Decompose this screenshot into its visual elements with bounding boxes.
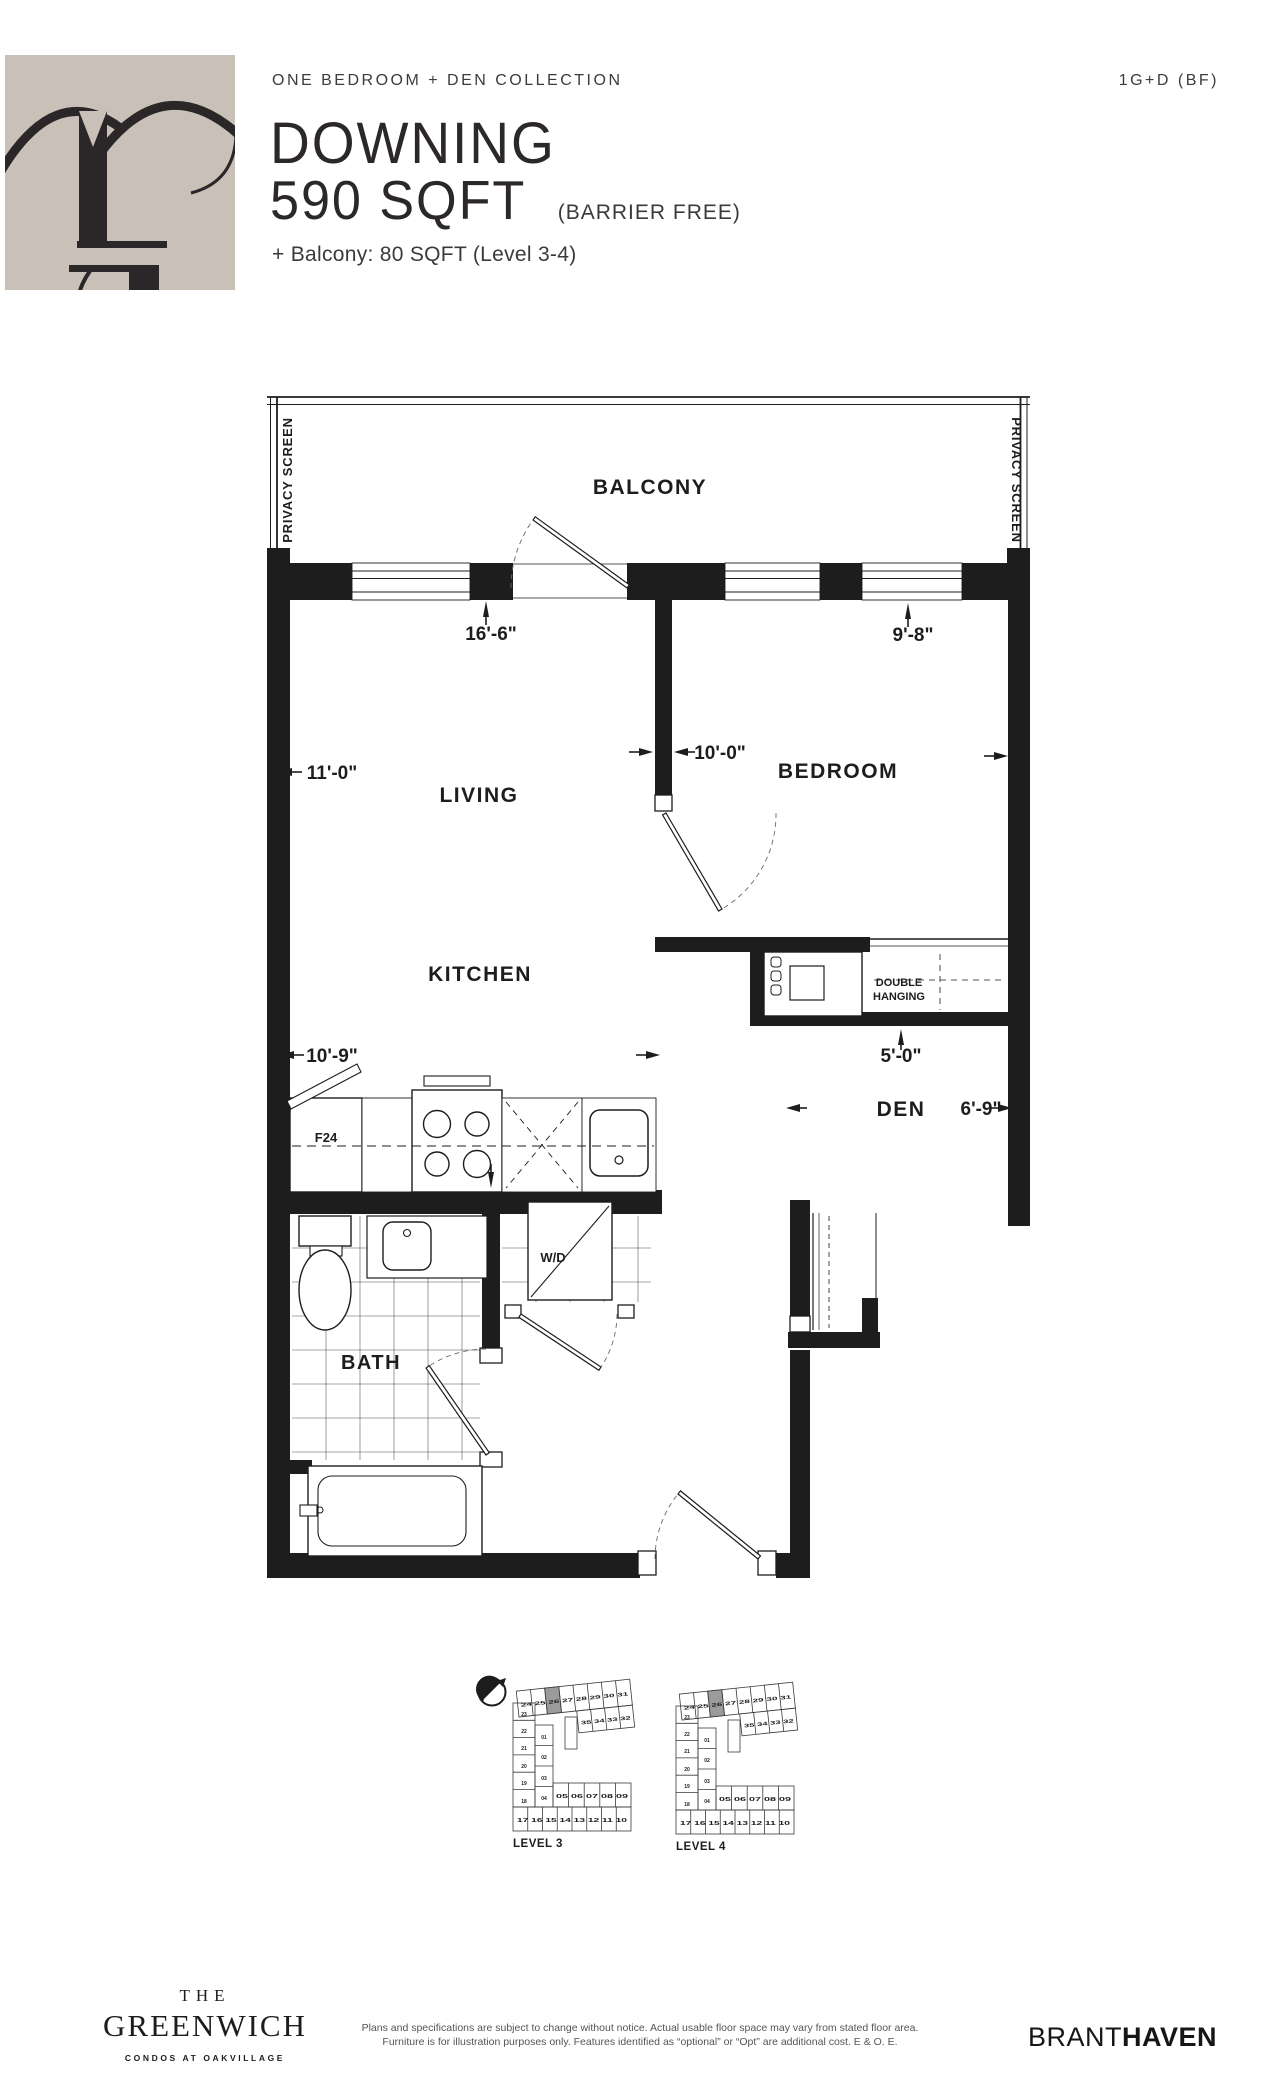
stove-handle [424,1076,490,1086]
counter [362,1098,412,1192]
key-plan-level-4: 24 25 26 27 28 29 30 31 35 34 33 32 23 2… [676,1682,798,1853]
svg-text:05 06 07 08 09: 05 06 07 08 09 [556,1794,628,1800]
bath-door [426,1366,489,1455]
svg-text:18: 18 [521,1799,527,1805]
label-closet-double: DOUBLE [876,977,922,989]
doors [426,517,776,1559]
floor-plan-drawing: PRIVACY SCREEN PRIVACY SCREEN [250,380,1050,1860]
dim-bedroom-width: 9'-8" [893,625,934,646]
svg-text:05 06 07 08 09: 05 06 07 08 09 [719,1797,791,1803]
svg-text:24 25 26 27 28 29 30 31: 24 25 26 27 28 29 30 31 [684,1694,792,1711]
svg-text:21: 21 [521,1746,527,1752]
dim-den-depth: 5'-0" [881,1046,922,1067]
toilet-bowl [299,1250,351,1330]
svg-text:17 16 15 14 13 12 11 10: 17 16 15 14 13 12 11 10 [680,1821,790,1827]
branthaven-wordmark: BRANTHAVEN [1028,2022,1217,2053]
floor-plan-sheet: ONE BEDROOM + DEN COLLECTION 1G+D (BF) D… [0,0,1275,2100]
unit-area: 590 SQFT [270,168,526,232]
greenwich-wordmark: THE GREENWICH CONDOS AT OAKVILLAGE [80,1986,330,2063]
disclaimer-line-2: Furniture is for illustration purposes o… [312,2035,968,2049]
kitchen-appliances [287,1064,656,1192]
greenwich-monogram-icon [5,55,235,290]
svg-text:20: 20 [684,1767,690,1773]
dim-living-kitchen-depth: 16'-6" [465,624,517,645]
legal-disclaimer: Plans and specifications are subject to … [312,2021,968,2049]
svg-text:19: 19 [521,1781,527,1787]
svg-text:22: 22 [521,1729,527,1735]
room-label-living: LIVING [439,784,518,807]
brand-tagline: CONDOS AT OAKVILLAGE [80,2053,330,2063]
balcony-area-note: + Balcony: 80 SQFT (Level 3-4) [272,243,577,267]
entry-door [678,1491,761,1559]
svg-text:02: 02 [704,1758,710,1764]
brand-name: GREENWICH [80,2008,330,2044]
svg-text:19: 19 [684,1784,690,1790]
svg-text:20: 20 [521,1764,527,1770]
label-fridge: F24 [315,1130,338,1145]
bedroom-door [663,813,722,911]
room-label-balcony: BALCONY [593,476,707,499]
collection-title: ONE BEDROOM + DEN COLLECTION [272,72,623,90]
label-washer-dryer: W/D [540,1250,565,1265]
svg-text:04: 04 [541,1796,547,1802]
key-plan-level-3: 24 25 26 27 28 29 30 31 35 34 33 32 23 2… [513,1679,635,1850]
svg-text:01: 01 [541,1735,547,1741]
north-arrow-icon [476,1676,506,1706]
svg-text:23: 23 [684,1715,690,1721]
room-label-bedroom: BEDROOM [778,760,898,783]
privacy-screen-left-label: PRIVACY SCREEN [280,417,295,543]
dim-wall-ten-feet: 10'-0" [694,743,746,764]
room-label-bath: BATH [341,1352,401,1374]
key-plan-level-4-label: LEVEL 4 [676,1841,726,1853]
key-plan-level-3-label: LEVEL 3 [513,1838,563,1850]
brand-the: THE [80,1986,330,2006]
fridge [290,1098,362,1192]
label-closet-hanging: HANGING [873,991,925,1003]
barrier-free-note: (BARRIER FREE) [558,201,741,225]
room-label-kitchen: KITCHEN [428,963,532,986]
svg-text:17 16 15 14 13 12 11 10: 17 16 15 14 13 12 11 10 [517,1818,627,1824]
svg-text:03: 03 [704,1779,710,1785]
svg-text:02: 02 [541,1755,547,1761]
stove [412,1090,502,1192]
unit-code: 1G+D (BF) [1119,72,1219,90]
toilet-tank [299,1216,351,1246]
plan-name: DOWNING [270,110,556,177]
dim-living-width: 11'-0" [307,763,358,784]
developer-brant: BRANT [1028,2022,1122,2052]
area-row: 590 SQFT (BARRIER FREE) [270,168,741,232]
disclaimer-line-1: Plans and specifications are subject to … [312,2021,968,2035]
developer-haven: HAVEN [1122,2022,1217,2052]
room-label-den: DEN [877,1098,926,1121]
svg-text:03: 03 [541,1776,547,1782]
dim-den-width: 6'-9" [961,1099,1002,1120]
svg-text:22: 22 [684,1732,690,1738]
wall-oven [764,952,862,1016]
dim-kitchen-width: 10'-9" [306,1046,358,1067]
svg-text:21: 21 [684,1749,690,1755]
laundry-door [519,1314,601,1370]
bathtub [308,1466,482,1556]
svg-text:18: 18 [684,1802,690,1808]
svg-text:01: 01 [704,1738,710,1744]
privacy-screen-right-label: PRIVACY SCREEN [1009,417,1024,543]
svg-text:23: 23 [521,1712,527,1718]
svg-text:24 25 26 27 28 29 30 31: 24 25 26 27 28 29 30 31 [521,1691,629,1708]
svg-text:04: 04 [704,1799,710,1805]
